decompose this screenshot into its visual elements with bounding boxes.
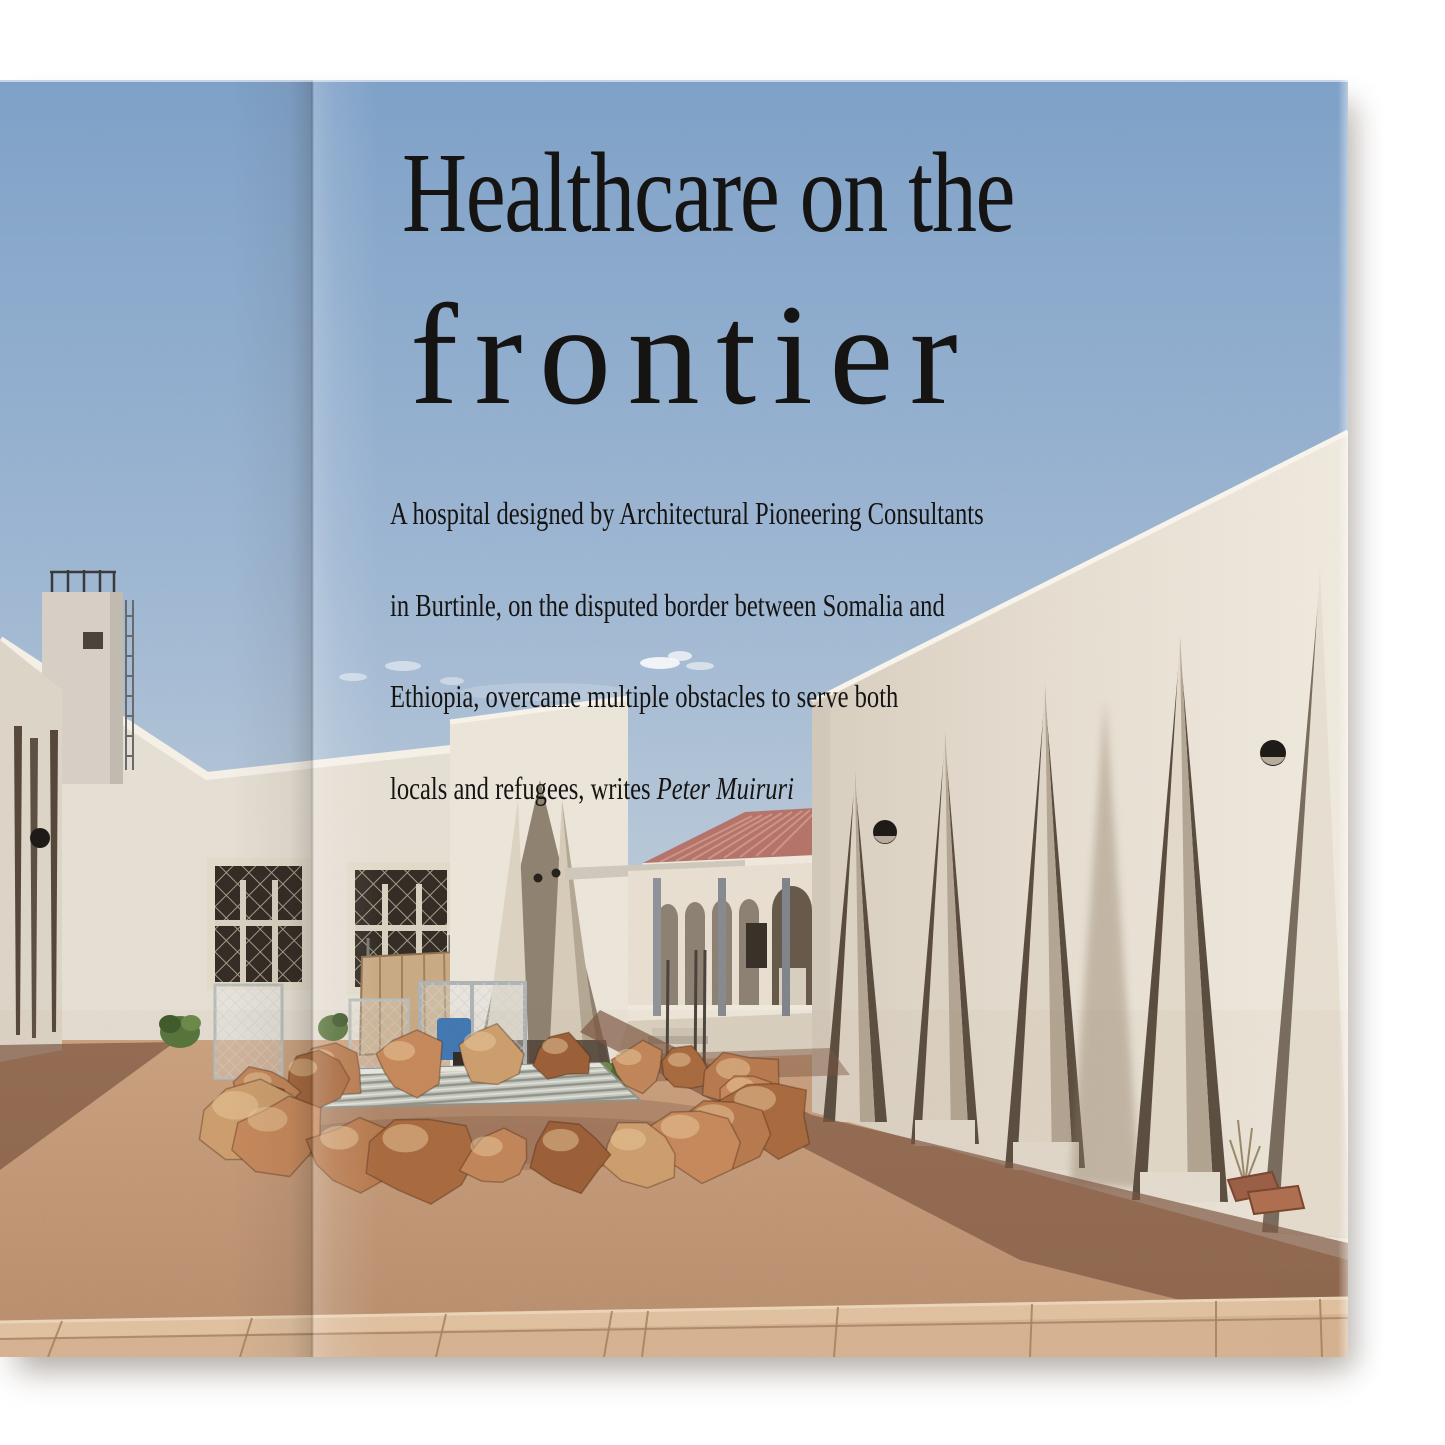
standfirst: A hospital designed by Architectural Pio… (390, 438, 984, 865)
magazine-spread-mockup: Healthcare on the frontier A hospital de… (0, 0, 1445, 1445)
magazine-page: Healthcare on the frontier A hospital de… (0, 80, 1348, 1357)
standfirst-line: A hospital designed by Architectural Pio… (390, 499, 984, 530)
standfirst-line: in Burtinle, on the disputed border betw… (390, 591, 984, 622)
standfirst-line: locals and refugees, writes Peter Muirur… (390, 774, 984, 805)
headline-line-2: frontier (410, 284, 974, 428)
standfirst-line4-prefix: locals and refugees, writes (390, 771, 657, 806)
standfirst-line: Ethiopia, overcame multiple obstacles to… (390, 682, 984, 713)
headline-line-1: Healthcare on the (402, 136, 1014, 250)
author-name: Peter Muiruri (657, 771, 794, 806)
